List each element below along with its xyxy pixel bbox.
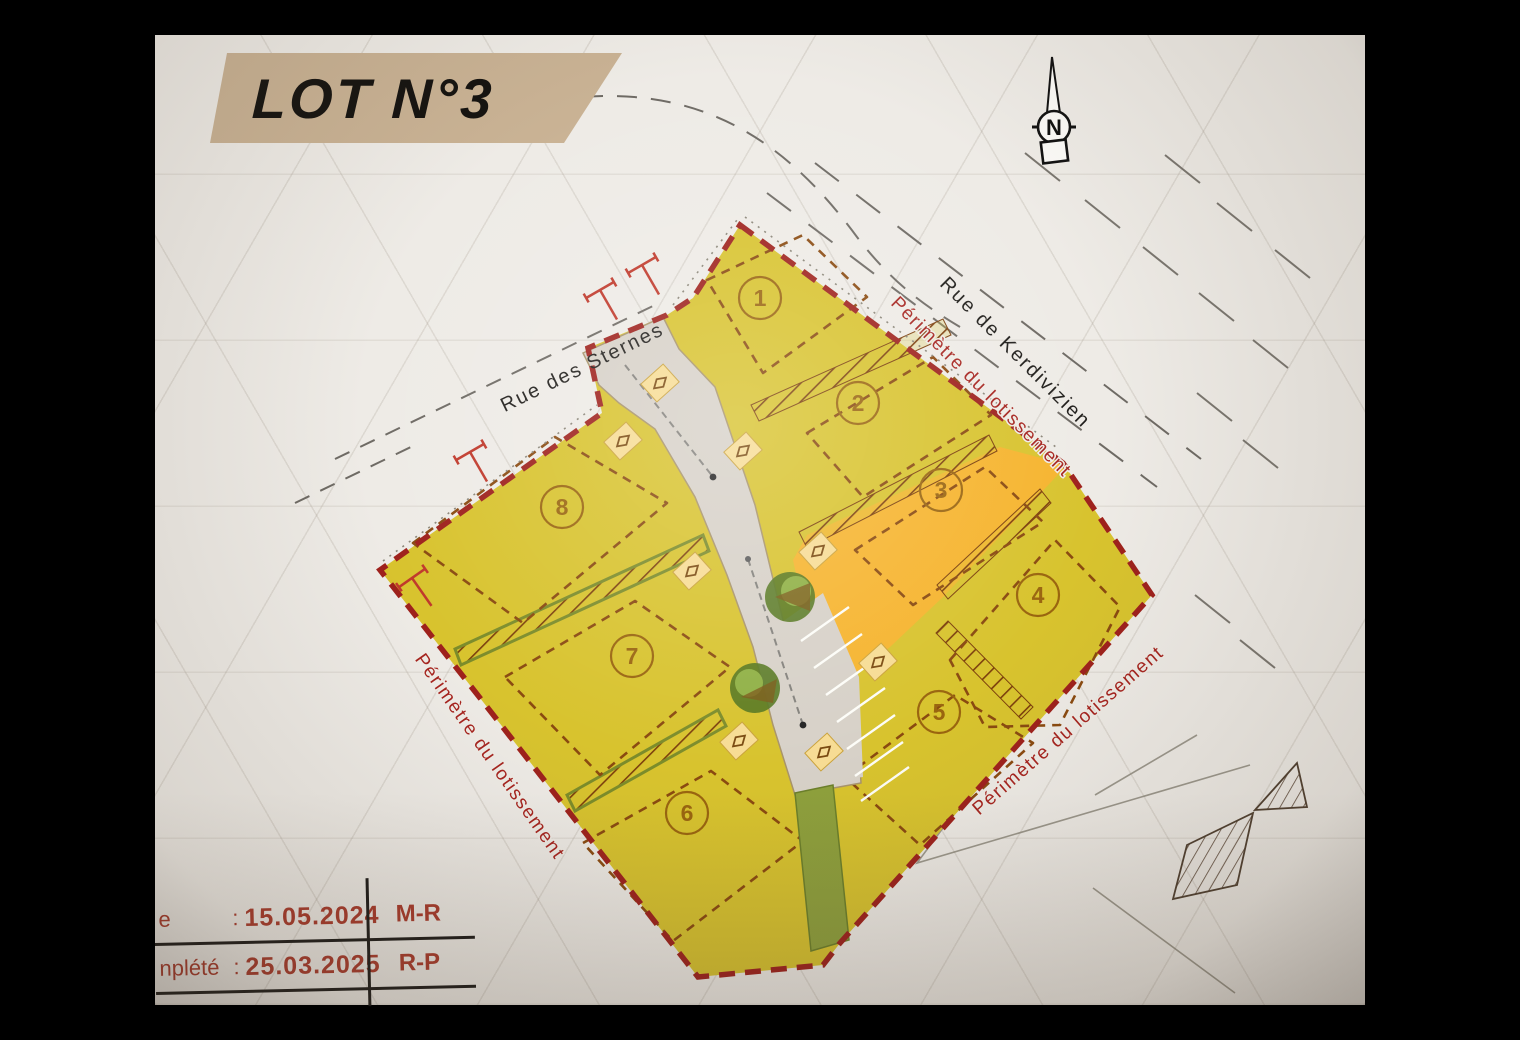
row-label: e bbox=[154, 905, 227, 933]
plan-sheet: 1 2 3 4 5 6 7 8 Rue des Sternes Rue de K… bbox=[155, 35, 1365, 1005]
title-banner: LOT N°3 bbox=[210, 53, 622, 143]
talus-symbol bbox=[1173, 763, 1307, 899]
lot-number-7: 7 bbox=[626, 643, 639, 669]
row-initials: R-P bbox=[365, 948, 474, 978]
lot-number-6: 6 bbox=[681, 800, 694, 826]
lot-number-5: 5 bbox=[933, 699, 946, 725]
row-initials: M-R bbox=[364, 899, 473, 929]
table-row: nplété : 25.03.2025 R-P bbox=[155, 939, 476, 995]
subdivision-map: 1 2 3 4 5 6 7 8 Rue des Sternes Rue de K… bbox=[155, 35, 1365, 1005]
row-date: 25.03.2025 bbox=[245, 950, 366, 982]
lot-number-4: 4 bbox=[1032, 582, 1045, 608]
lot-number-8: 8 bbox=[556, 494, 569, 520]
revision-table: e : 15.05.2024 M-R nplété : 25.03.2025 R… bbox=[154, 890, 476, 995]
row-colon: : bbox=[227, 954, 246, 980]
tree bbox=[730, 663, 780, 713]
lot-number-2: 2 bbox=[852, 390, 865, 416]
lot-number-1: 1 bbox=[754, 285, 767, 311]
plan-title: LOT N°3 bbox=[209, 66, 496, 131]
row-label: nplété bbox=[155, 954, 228, 982]
north-label: N bbox=[1046, 115, 1062, 140]
row-colon: : bbox=[226, 905, 245, 931]
lot-number-3: 3 bbox=[935, 477, 948, 503]
north-arrow: N bbox=[1032, 57, 1076, 163]
tree bbox=[765, 572, 815, 622]
table-row: e : 15.05.2024 M-R bbox=[154, 890, 475, 946]
row-date: 15.05.2024 bbox=[244, 901, 365, 933]
